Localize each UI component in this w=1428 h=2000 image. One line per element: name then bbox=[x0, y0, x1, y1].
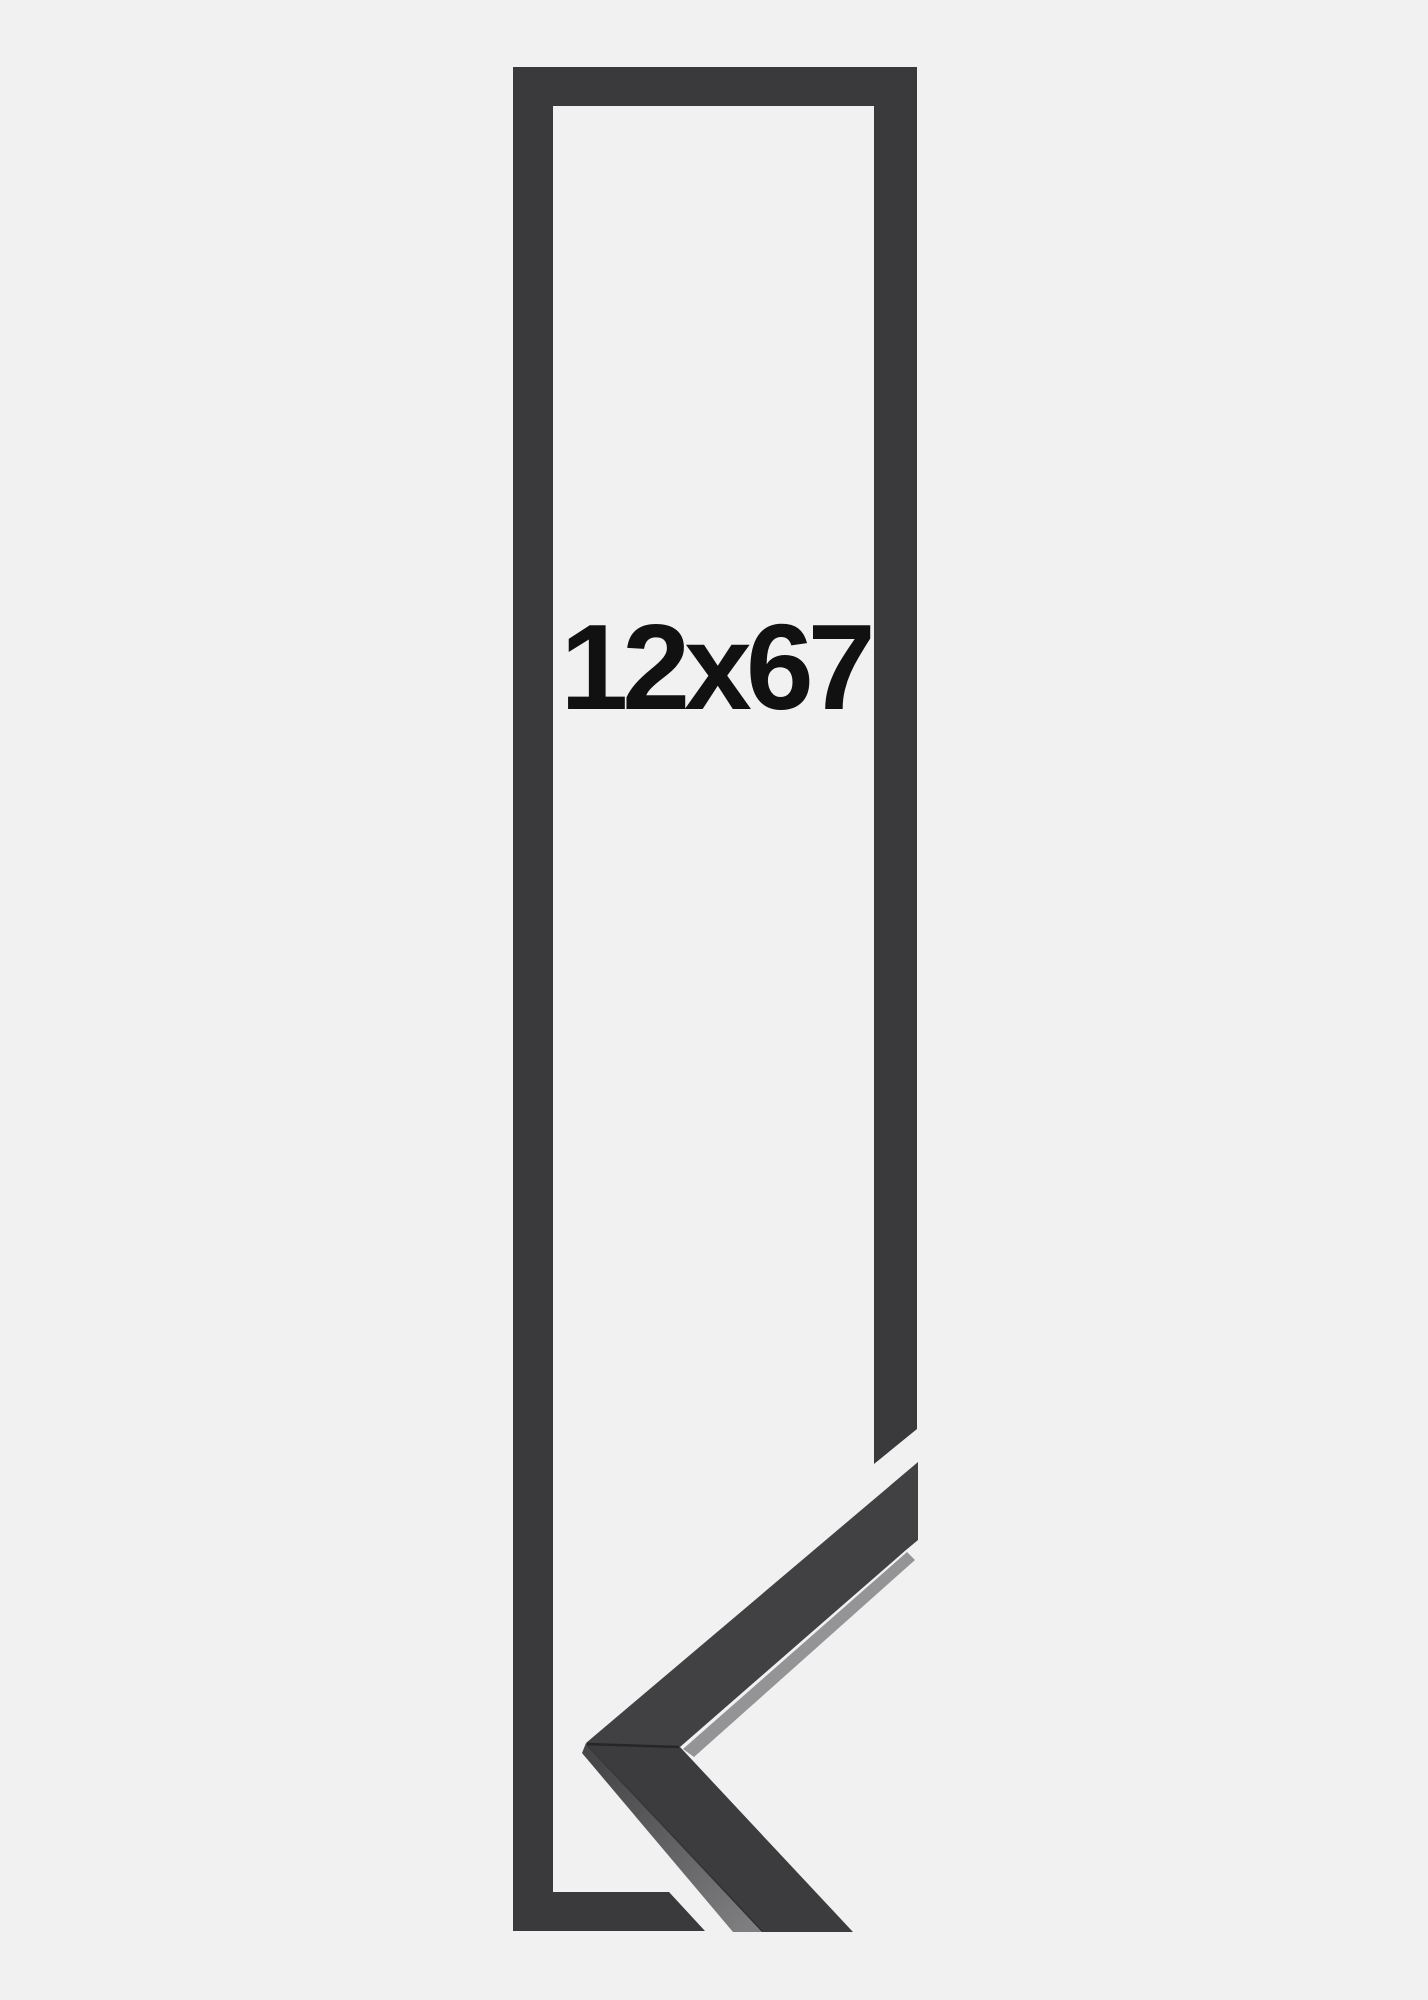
frame-top-bar bbox=[513, 67, 917, 106]
corner-sample bbox=[582, 1462, 918, 1932]
frame-bottom-bar bbox=[513, 1892, 705, 1931]
frame-illustration bbox=[0, 0, 1428, 2000]
frame-size-label: 12x67 bbox=[513, 606, 917, 728]
frame-left-bar bbox=[513, 67, 553, 1931]
frame-product-image: 12x67 bbox=[0, 0, 1428, 2000]
frame-right-bar bbox=[874, 67, 917, 1464]
